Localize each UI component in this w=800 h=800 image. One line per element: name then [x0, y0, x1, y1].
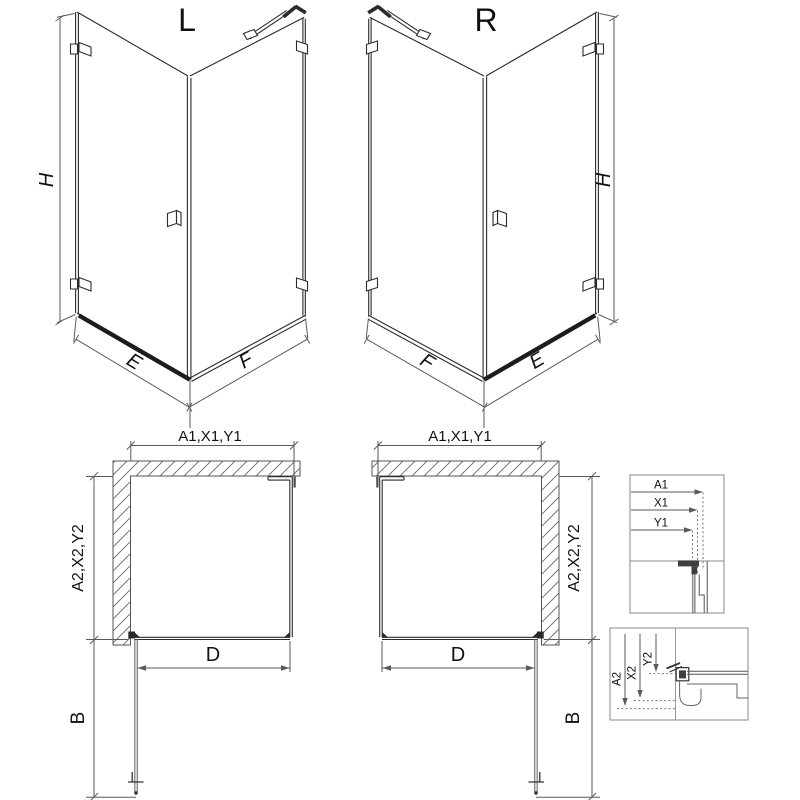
x2-arrow: [637, 690, 642, 698]
hinge-top-icon: [583, 43, 595, 57]
wall-profile-bar: [678, 560, 699, 566]
panel-bracket-top: [367, 41, 378, 54]
x1-arrow: [689, 507, 698, 512]
shower-enclosure-technical-drawing: L H E F R: [0, 0, 800, 800]
hinge-bottom-icon: [583, 278, 595, 292]
hinge-bottom-plate: [71, 279, 78, 289]
shower-tray-section: [680, 681, 748, 706]
width-dim-label: A1,X1,Y1: [428, 428, 491, 445]
d-arrow-right: [526, 665, 535, 670]
variant-label-left: L: [178, 2, 196, 38]
door-corner-mark-left: [382, 632, 388, 638]
door-dim-label: D: [451, 644, 465, 666]
e-dimension-lines: [484, 317, 601, 429]
door-tip: [534, 791, 537, 794]
detail-width-profile: A1 X1 Y1: [630, 475, 724, 613]
variant-label-right: R: [474, 2, 497, 38]
wall-profile-leg: [692, 566, 698, 574]
fixed-panel-plan: [377, 477, 404, 637]
corner-edge: [483, 77, 487, 380]
door-handle-side: [177, 211, 182, 226]
support-bar-clamp: [244, 30, 258, 40]
door-handle-side: [493, 211, 498, 226]
hinge-bottom-icon: [79, 278, 91, 292]
door-pivot-hinge: [537, 632, 544, 639]
height-dim-label: H: [36, 172, 58, 187]
hinge-bottom-plate: [597, 279, 604, 289]
h-dimension-lines: [599, 14, 619, 326]
hinge-top-plate: [597, 44, 604, 54]
side-panel-outline: [190, 17, 306, 381]
door-handle-plan: [128, 772, 144, 782]
panel-bracket-bottom: [367, 278, 378, 291]
wall-hatch: [113, 461, 300, 645]
y1-arrow: [684, 527, 693, 532]
corner-edge: [187, 77, 191, 380]
wall-hatch: [372, 461, 559, 645]
left-3d-view: L H E F: [36, 2, 310, 428]
width-dim-label: A1,X1,Y1: [178, 428, 241, 445]
a2-arrow: [622, 698, 627, 706]
right-plan-view: A1,X1,Y1 A2,X2,Y2 D B: [372, 428, 600, 800]
detail-depth-profile: A2 X2 Y2: [610, 628, 748, 720]
glass-panel-section: [687, 671, 748, 674]
a2-label: A2: [612, 672, 624, 686]
panel-bracket-bottom: [297, 278, 308, 291]
door-handle-icon: [498, 211, 507, 227]
wall-bracket-top-icon: [368, 6, 390, 17]
b-dimension-lines: [86, 640, 136, 800]
swing-dim-label: B: [68, 712, 89, 725]
door-open-plan: [535, 640, 538, 793]
left-plan-view: A1,X1,Y1 A2,X2,Y2 D B: [68, 428, 300, 800]
d-arrow-right: [281, 665, 290, 670]
hinge-top-plate: [71, 44, 78, 54]
door-corner-mark-right: [284, 632, 290, 638]
door-closed-plan: [382, 637, 538, 639]
a1-label: A1: [654, 480, 668, 492]
depth-dim-label: A2,X2,Y2: [566, 524, 583, 592]
d-arrow-left: [138, 665, 147, 670]
d-arrow-left: [383, 665, 392, 670]
door-handle-plan: [529, 772, 545, 782]
detail-box-border: [630, 475, 724, 613]
door-handle-icon: [168, 211, 177, 227]
depth-dim-label: A2,X2,Y2: [70, 524, 87, 592]
side-panel-outline: [368, 17, 484, 381]
door-dim-label: D: [206, 644, 220, 666]
door-closed-plan: [134, 637, 290, 639]
wall-bracket-top-icon: [284, 6, 306, 17]
height-dim-label: H: [593, 172, 615, 187]
panel-width-dim-label: F: [416, 349, 439, 375]
panel-bracket-top: [297, 41, 308, 54]
door-open-plan: [135, 640, 138, 793]
a1-arrow: [695, 489, 704, 494]
x2-label: X2: [627, 666, 639, 680]
h-dimension-lines: [56, 14, 76, 326]
support-bar-clamp: [417, 30, 431, 40]
hinge-top-icon: [79, 43, 91, 57]
glass-clamp-core: [679, 670, 686, 678]
fixed-panel-plan: [268, 477, 295, 637]
x1-label: X1: [654, 498, 668, 510]
door-tip: [134, 791, 137, 794]
y1-label: Y1: [654, 518, 668, 530]
right-3d-view: R H F E: [364, 2, 618, 428]
door-pivot-hinge: [128, 632, 135, 639]
y2-label: Y2: [643, 652, 655, 666]
swing-dim-label: B: [563, 712, 584, 725]
drawing-page: L H E F R: [0, 0, 800, 800]
door-width-dim-label: E: [526, 348, 549, 374]
